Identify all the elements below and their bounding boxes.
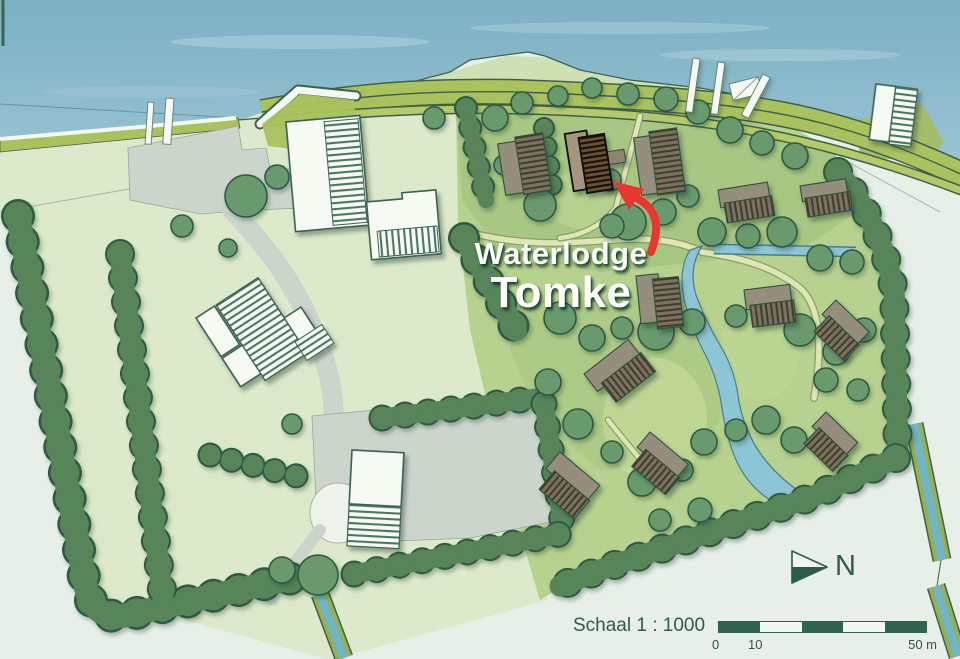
scale-segment xyxy=(760,622,801,632)
scale-segment xyxy=(802,622,843,632)
waterfront-barn xyxy=(869,84,918,147)
lodge xyxy=(718,182,775,224)
map-canvas xyxy=(0,0,960,659)
lodge xyxy=(633,128,685,198)
lodge xyxy=(800,178,852,217)
scale-tick-50: 50 m xyxy=(895,637,937,652)
scale-label: Schaal 1 : 1000 xyxy=(573,615,705,637)
scale-bar xyxy=(718,621,927,633)
barn xyxy=(347,450,404,549)
site-plan-map: Waterlodge Tomke Schaal 1 : 1000 0 10 50… xyxy=(0,0,960,659)
title-line-1: Waterlodge xyxy=(446,238,676,269)
scale-tick-0: 0 xyxy=(712,637,719,652)
map-title: Waterlodge Tomke xyxy=(446,238,676,315)
scale-segment xyxy=(885,622,926,632)
scale-segment xyxy=(843,622,884,632)
lodge xyxy=(744,284,796,328)
scale-segment xyxy=(719,622,760,632)
north-label: N xyxy=(835,550,856,583)
marina-hall xyxy=(286,116,369,232)
scale-tick-10: 10 xyxy=(748,637,762,652)
workshop-building xyxy=(366,190,441,260)
tomke-lodge xyxy=(565,128,613,195)
title-line-2: Tomke xyxy=(446,271,676,315)
lodge xyxy=(497,133,552,197)
